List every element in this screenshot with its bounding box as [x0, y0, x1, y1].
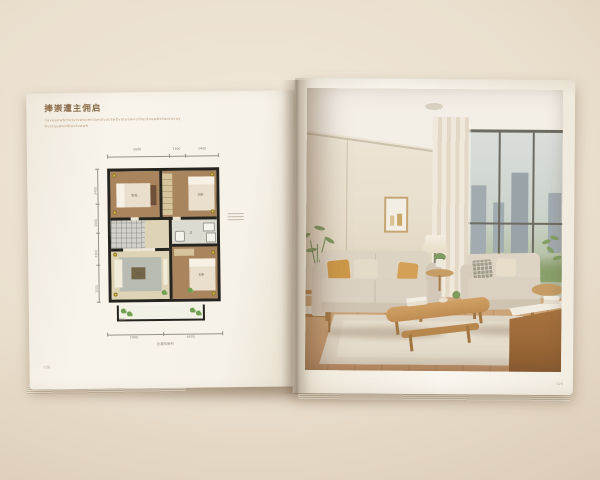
floor-plan-drawing: 卧室 次卧 卫 客厅 主卧	[107, 167, 221, 302]
plan-wall	[181, 216, 217, 219]
plan-room-label: 阳台	[119, 317, 125, 321]
plan-side-note	[228, 213, 244, 222]
plan-lamp-dot	[211, 250, 215, 254]
plan-lamp-dot	[114, 293, 118, 297]
plan-dresser	[174, 249, 194, 256]
plan-plant	[127, 311, 132, 316]
photo-pillow-cream	[354, 259, 378, 278]
plan-wall	[172, 243, 217, 247]
plan-bed-pillow	[189, 258, 215, 266]
plan-bed-pillow	[188, 176, 214, 184]
dim-label: 3300	[94, 250, 98, 258]
plan-wall	[111, 248, 123, 251]
floor-plan-title: 捧崇遭主佣启	[44, 102, 101, 115]
plan-washer	[206, 232, 216, 242]
photo-wall-art-frame	[384, 197, 408, 233]
plan-wall	[155, 248, 169, 251]
plan-room-label: 次卧	[197, 192, 203, 196]
plan-lamp-dot	[113, 211, 117, 215]
dim-label: 2900	[130, 335, 138, 339]
plan-balcony: 阳台	[117, 304, 205, 321]
dim-label: 4600	[187, 335, 195, 339]
plan-dimension-left: 3400 1500 3300 1200	[89, 169, 100, 303]
plan-stairwell-hatch	[111, 220, 145, 248]
dim-label: 2600	[133, 147, 141, 151]
plan-plant	[190, 308, 195, 313]
photo-small-plant	[452, 290, 461, 299]
photo-round-side-table	[426, 269, 454, 291]
plan-sink	[203, 222, 215, 231]
book-right-page: 029	[293, 78, 575, 395]
dim-label: 1200	[95, 285, 99, 293]
plan-plant	[121, 308, 126, 313]
plan-lamp-dot	[113, 253, 117, 257]
plan-plant	[188, 288, 193, 293]
photo-city-building	[511, 172, 529, 255]
photo-cabinet	[509, 300, 563, 372]
plan-wall	[111, 217, 131, 220]
plan-area-caption: 总建筑面积	[109, 340, 221, 346]
dim-label: 1300	[172, 147, 180, 151]
plan-tv-cabinet	[163, 259, 167, 285]
right-page-number: 029	[556, 382, 563, 386]
plan-sofa	[114, 259, 122, 287]
plan-lamp-dot	[211, 209, 215, 213]
photo-stacked-dishes	[544, 296, 560, 300]
photo-pillow-cream	[496, 258, 517, 277]
plan-lamp-dot	[210, 172, 214, 176]
plan-lamp-dot	[212, 291, 216, 295]
dim-label: 3400	[93, 187, 97, 195]
plan-wall	[139, 217, 173, 220]
photo-city-building	[471, 185, 487, 255]
plan-nightstand	[150, 185, 156, 205]
living-room-photo	[305, 88, 563, 372]
plan-bed-pillow	[116, 183, 124, 207]
photo-ceiling-light	[425, 103, 443, 110]
dim-label: 1500	[94, 219, 98, 227]
book-left-page: 捧崇遭主佣启 naveaowbmotelvwoaetvbeolvaotwbvot…	[26, 90, 298, 389]
plan-lamp-dot	[112, 174, 116, 178]
plan-plant	[196, 311, 201, 316]
plan-dimension-bottom: 2900 4600	[107, 329, 223, 339]
photo-books	[406, 296, 426, 302]
photo-round-side-table-right	[532, 284, 564, 296]
photo-plant-right	[540, 236, 563, 276]
plan-dimension-top: 2600 1300 2400	[107, 147, 219, 157]
dim-label: 2400	[198, 146, 206, 150]
plan-room-label: 卧室	[131, 193, 137, 197]
plan-room-label: 客厅	[136, 271, 142, 275]
photo-pillow-plaid	[471, 259, 493, 280]
left-page-number: 038	[44, 365, 51, 369]
plan-plant	[162, 290, 167, 295]
plan-room-label: 卫	[189, 231, 192, 235]
plan-wardrobe	[162, 173, 173, 215]
floor-plan-subtitle-line2: bvoteawvolbeotvawb	[45, 122, 225, 129]
plan-room-label: 主卧	[198, 272, 204, 276]
plan-toilet	[175, 231, 185, 242]
